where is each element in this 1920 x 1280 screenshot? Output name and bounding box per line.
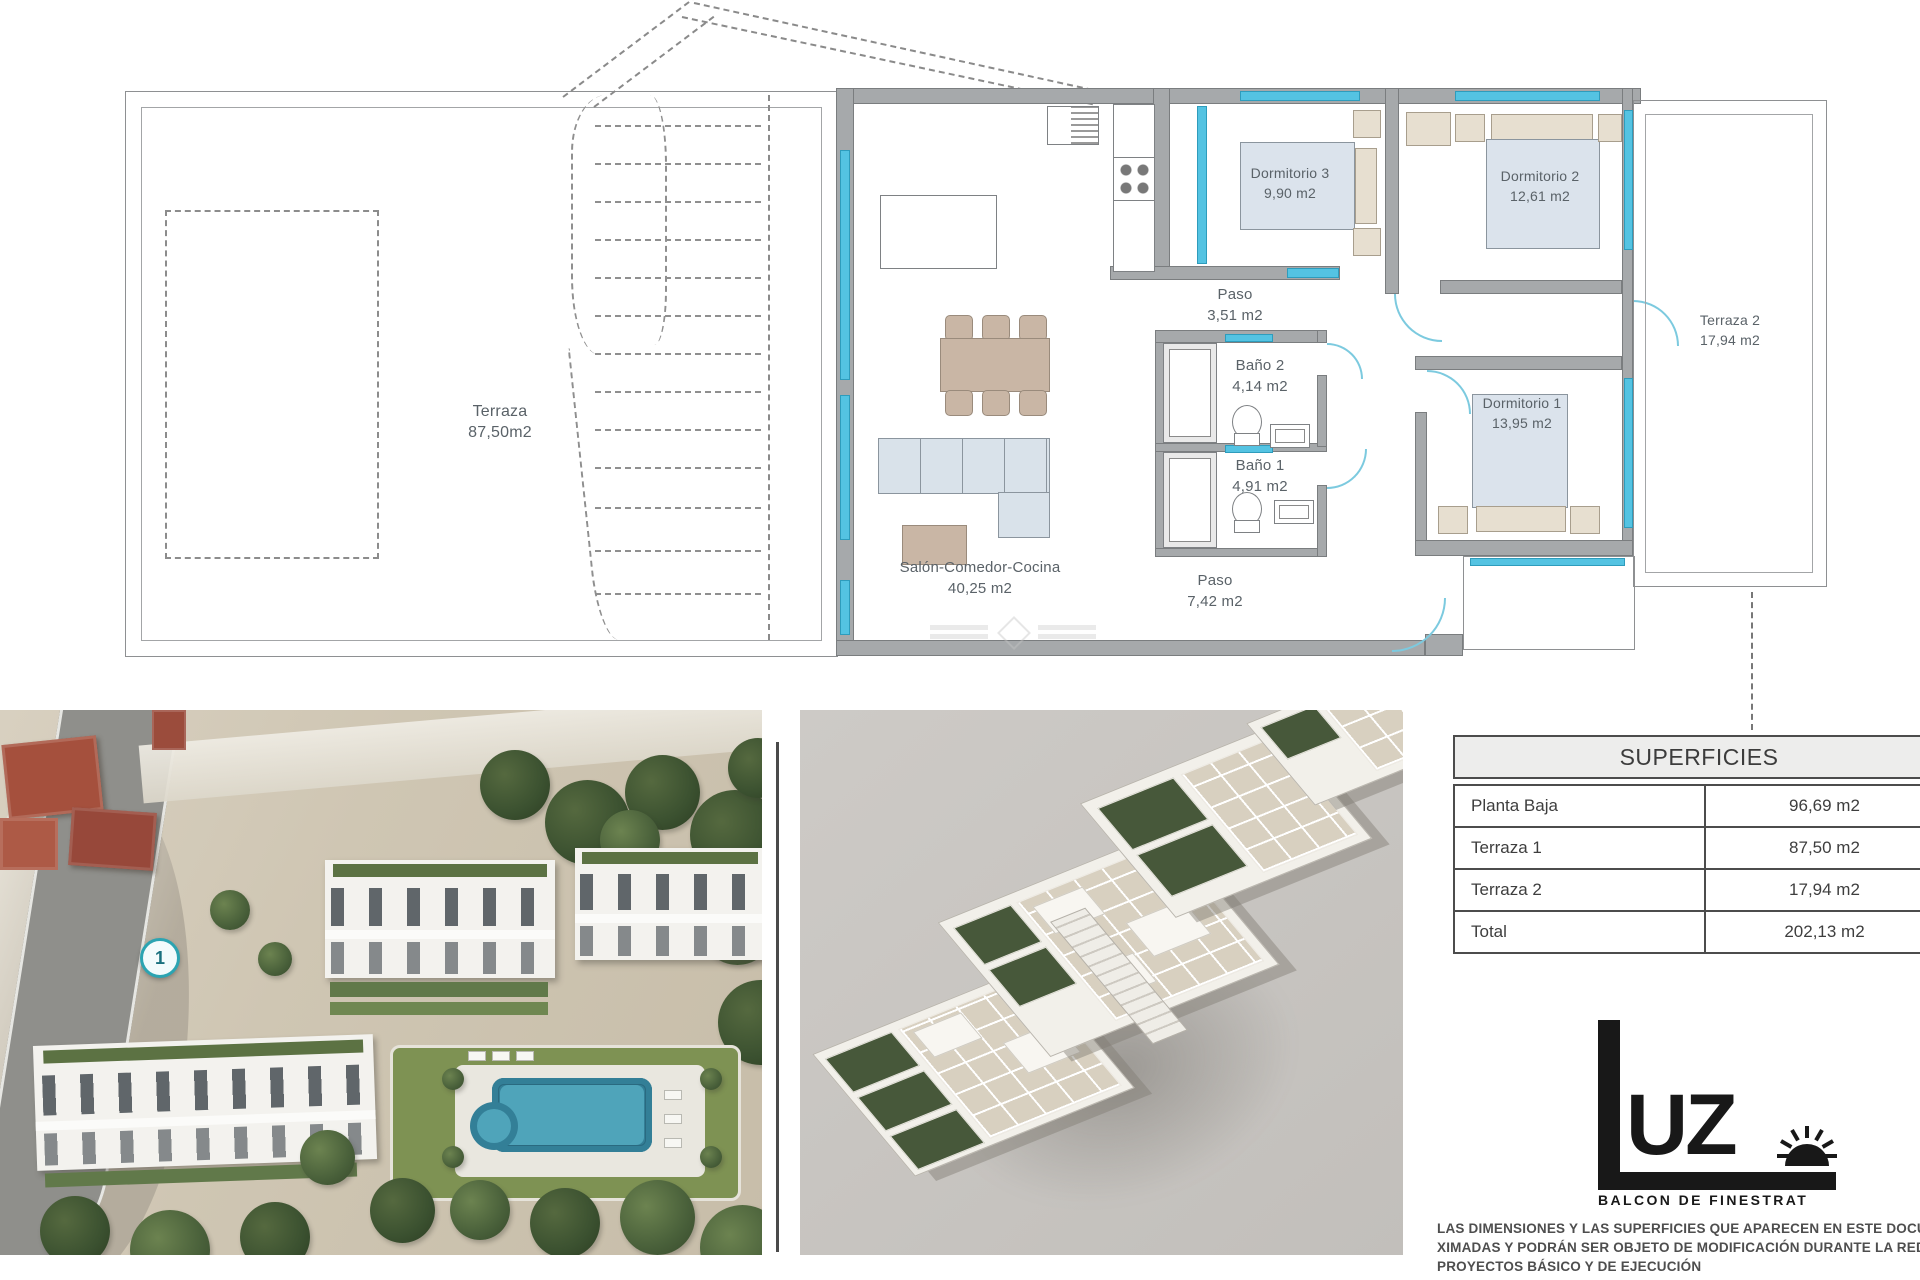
stairs-edge xyxy=(768,95,770,640)
red-roof-house xyxy=(68,807,157,871)
divider-line xyxy=(776,742,779,1252)
sun-icon xyxy=(1776,1112,1838,1172)
row-value: 96,69 m2 xyxy=(1704,786,1920,826)
sun-lounger xyxy=(664,1114,682,1124)
row-value: 87,50 m2 xyxy=(1704,828,1920,868)
row-label: Terraza 1 xyxy=(1455,828,1704,868)
wall xyxy=(1415,356,1622,370)
chair xyxy=(945,390,973,416)
table-title: SUPERFICIES xyxy=(1620,744,1779,771)
disclaimer-text: LAS DIMENSIONES Y LAS SUPERFICIES QUE AP… xyxy=(1437,1219,1920,1280)
row-label: Terraza 2 xyxy=(1455,870,1704,910)
table-row: Terraza 1 87,50 m2 xyxy=(1455,826,1920,868)
nightstand xyxy=(1353,228,1381,256)
room-label-paso-a: Paso3,51 m2 xyxy=(1185,284,1285,326)
terrace-railing xyxy=(575,914,762,923)
table-row: Terraza 2 17,94 m2 xyxy=(1455,868,1920,910)
sun-lounger xyxy=(516,1051,534,1061)
lower-terrace-outline xyxy=(1463,556,1635,650)
table-body: Planta Baja 96,69 m2 Terraza 1 87,50 m2 … xyxy=(1453,784,1920,954)
facade-windows xyxy=(42,1064,367,1115)
room-label-dorm2: Dormitorio 212,61 m2 xyxy=(1465,166,1615,206)
pool-round-inner xyxy=(477,1109,511,1143)
window xyxy=(1624,378,1633,528)
wall xyxy=(1317,375,1327,447)
disclaimer-line: XIMADAS Y PODRÁN SER OBJETO DE MODIFICAC… xyxy=(1437,1238,1920,1257)
door-arc xyxy=(1394,294,1442,342)
window xyxy=(1455,91,1600,101)
iso-render xyxy=(800,710,1403,1255)
watermark xyxy=(930,618,1100,648)
window xyxy=(1225,445,1273,453)
window xyxy=(1287,268,1339,278)
kitchen-island xyxy=(880,195,997,269)
disclaimer-line: PROYECTOS BÁSICO Y DE EJECUCIÓN xyxy=(1437,1257,1920,1276)
aerial-render-photo: 1 xyxy=(0,710,762,1255)
window xyxy=(840,150,850,380)
badge-number: 1 xyxy=(155,948,165,969)
disclaimer-line: LAS DIMENSIONES Y LAS SUPERFICIES QUE AP… xyxy=(1437,1219,1920,1238)
wall xyxy=(1425,634,1463,656)
roof-outline xyxy=(694,2,1113,95)
door-arc xyxy=(1327,449,1367,489)
facade-windows xyxy=(580,874,760,910)
wall xyxy=(1317,330,1327,343)
roof-garden-patch xyxy=(1260,710,1341,759)
wall xyxy=(836,640,1425,656)
window xyxy=(1197,106,1207,264)
row-value: 202,13 m2 xyxy=(1704,912,1920,952)
washbasin xyxy=(1270,424,1310,448)
stove-icon xyxy=(1113,157,1155,201)
sun-lounger xyxy=(492,1051,510,1061)
pillow xyxy=(1491,114,1593,141)
logo-baseline xyxy=(1598,1172,1836,1190)
room-label-dorm3: Dormitorio 39,90 m2 xyxy=(1215,163,1365,203)
front-garden xyxy=(330,982,548,997)
logo-uz-text: UZ xyxy=(1626,1078,1735,1172)
red-roof-tower xyxy=(152,710,186,750)
sun-lounger xyxy=(664,1138,682,1148)
brand-subtitle: BALCON DE FINESTRAT xyxy=(1598,1192,1848,1208)
wardrobe xyxy=(1406,112,1451,146)
nightstand xyxy=(1438,506,1468,534)
superficies-table: SUPERFICIES Planta Baja 96,69 m2 Terraza… xyxy=(1453,735,1920,954)
window xyxy=(840,395,850,540)
roof-garden xyxy=(582,852,758,864)
table-row: Total 202,13 m2 xyxy=(1455,910,1920,952)
window xyxy=(1225,334,1273,342)
room-label-dorm1: Dormitorio 113,95 m2 xyxy=(1447,393,1597,433)
red-roof-house xyxy=(1,735,103,820)
wall xyxy=(1317,485,1327,557)
pool-inner xyxy=(500,1085,644,1145)
window xyxy=(1624,110,1633,250)
table-row: Planta Baja 96,69 m2 xyxy=(1455,786,1920,826)
sofa xyxy=(878,438,1050,494)
toilet-tank xyxy=(1234,520,1260,533)
nightstand xyxy=(1570,506,1600,534)
row-label: Planta Baja xyxy=(1455,786,1704,826)
front-garden xyxy=(330,1002,548,1015)
room-label-terraza2: Terraza 217,94 m2 xyxy=(1650,310,1810,350)
nightstand xyxy=(1455,114,1485,142)
roof-outline xyxy=(562,0,697,98)
red-roof-house xyxy=(0,818,58,870)
facade-windows xyxy=(331,888,549,926)
floor-plan: Terraza87,50m2 xyxy=(0,0,1920,700)
chair xyxy=(1019,390,1047,416)
room-label-terraza1: Terraza87,50m2 xyxy=(420,401,580,443)
diamond-icon xyxy=(997,616,1031,650)
facade-windows xyxy=(580,926,760,956)
wall xyxy=(1440,280,1622,294)
sun-lounger xyxy=(664,1090,682,1100)
row-value: 17,94 m2 xyxy=(1704,870,1920,910)
wall xyxy=(1153,88,1170,270)
wall xyxy=(1385,88,1399,294)
plan-sheet: Terraza87,50m2 xyxy=(0,0,1920,1280)
wall xyxy=(1155,548,1327,557)
stairs xyxy=(585,95,775,640)
wall xyxy=(1415,540,1633,556)
reference-dashed-line xyxy=(1751,592,1753,730)
nightstand xyxy=(1598,114,1622,142)
building-block xyxy=(325,860,555,978)
door-arc xyxy=(1327,343,1363,379)
kitchen-sink xyxy=(1047,106,1099,145)
window xyxy=(840,580,850,635)
toilet-tank xyxy=(1234,433,1260,446)
sun-lounger xyxy=(468,1051,486,1061)
facade-windows xyxy=(331,942,549,974)
window xyxy=(1240,91,1360,101)
terrace-railing xyxy=(325,930,555,939)
chair xyxy=(982,390,1010,416)
planter-outline xyxy=(165,210,379,559)
table-header: SUPERFICIES xyxy=(1453,735,1920,779)
nightstand xyxy=(1353,110,1381,138)
logo-l-bar xyxy=(1598,1020,1620,1190)
unit-badge: 1 xyxy=(140,938,180,978)
pillow xyxy=(1476,506,1566,532)
dining-table xyxy=(940,338,1050,392)
room-label-bano2: Baño 24,14 m2 xyxy=(1205,355,1315,397)
washbasin xyxy=(1274,500,1314,524)
room-label-salon: Salón-Comedor-Cocina40,25 m2 xyxy=(870,557,1090,599)
wall xyxy=(1415,412,1427,554)
building-block xyxy=(575,848,762,960)
stairs-curve xyxy=(625,95,667,345)
roof-garden xyxy=(43,1039,363,1063)
room-label-paso-b: Paso7,42 m2 xyxy=(1165,570,1265,612)
roof-garden xyxy=(333,864,547,877)
room-label-bano1: Baño 14,91 m2 xyxy=(1205,455,1315,497)
sofa-chaise xyxy=(998,492,1050,538)
row-label: Total xyxy=(1455,912,1704,952)
luz-logo: UZ xyxy=(1598,1020,1842,1192)
